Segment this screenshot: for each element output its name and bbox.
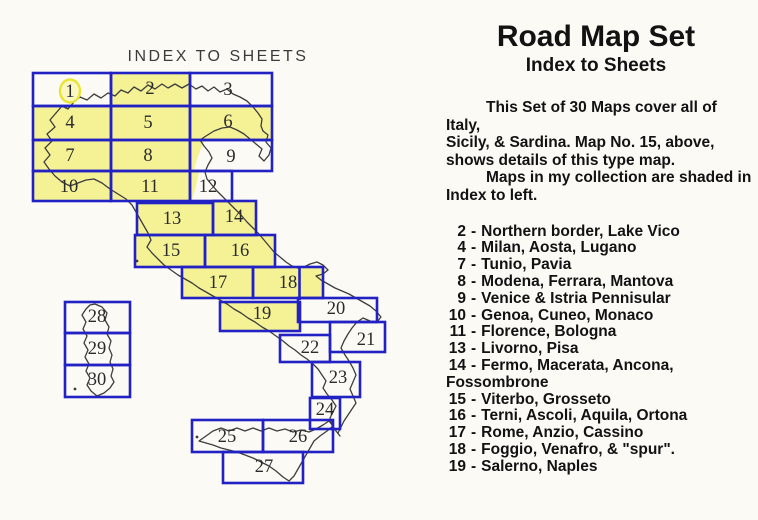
intro-paragraphs: This Set of 30 Maps cover all of Italy,S…	[440, 99, 752, 205]
intro-line: This Set of 30 Maps cover all of Italy,	[446, 99, 752, 134]
map-cell-number-10: 10	[60, 177, 79, 197]
sheet-list-item-11: 11-Florence, Bologna	[440, 324, 752, 341]
sheet-description: Modena, Ferrara, Mantova	[481, 274, 752, 291]
sheet-description: Foggio, Venafro, & "spur".	[481, 442, 752, 459]
map-cell-number-13: 13	[163, 209, 182, 229]
separator-dash: -	[466, 408, 481, 425]
map-cell-number-6: 6	[223, 112, 232, 132]
sheet-list-item-19: 19-Salerno, Naples	[440, 459, 752, 476]
separator-dash: -	[466, 459, 481, 476]
sheet-number: 4	[440, 240, 466, 257]
sheet-number: 10	[440, 308, 466, 325]
map-cell-number-19: 19	[253, 304, 272, 324]
intro-line: shows details of this type map.	[446, 152, 752, 170]
sheet-list: 2-Northern border, Lake Vico4-Milan, Aos…	[440, 224, 752, 476]
intro-line: Maps in my collection are shaded in	[446, 169, 752, 187]
map-cell-number-2: 2	[145, 79, 154, 99]
sheet-description: Fermo, Macerata, Ancona,	[481, 358, 752, 375]
separator-dash: -	[466, 358, 481, 375]
partial-shade-cell12	[190, 172, 199, 200]
sheet-list-item-13: 13-Livorno, Pisa	[440, 341, 752, 358]
sheet-description: Florence, Bologna	[481, 324, 752, 341]
map-cell-number-22: 22	[301, 338, 320, 358]
sheet-description: Viterbo, Grosseto	[481, 392, 752, 409]
separator-dash: -	[466, 224, 481, 241]
sheet-number: 13	[440, 341, 466, 358]
sheet-list-item-7: 7-Tunio, Pavia	[440, 257, 752, 274]
index-map-title: INDEX TO SHEETS	[128, 48, 309, 65]
map-cell-number-16: 16	[231, 241, 250, 261]
sheet-list-item-9: 9-Venice & Istria Pennisular	[440, 291, 752, 308]
small-island-dot	[196, 436, 199, 439]
sheet-number: 11	[440, 324, 466, 341]
sheet-description: Livorno, Pisa	[481, 341, 752, 358]
map-cell-number-24: 24	[316, 400, 335, 420]
map-cell-number-17: 17	[209, 273, 228, 293]
separator-dash: -	[466, 240, 481, 257]
sheet-description: Tunio, Pavia	[481, 257, 752, 274]
map-cell-number-8: 8	[143, 146, 152, 166]
map-cell-number-14: 14	[225, 207, 244, 227]
map-cell-number-5: 5	[143, 113, 152, 133]
sheet-number: 14	[440, 358, 466, 375]
separator-dash: -	[466, 341, 481, 358]
separator-dash: -	[466, 425, 481, 442]
sheet-number: 8	[440, 274, 466, 291]
sheet-description-continuation: Fossombrone	[440, 375, 752, 392]
map-cell-number-29: 29	[88, 339, 107, 359]
map-cell-number-27: 27	[255, 457, 274, 477]
map-cell-number-4: 4	[65, 113, 74, 133]
sheet-description: Salerno, Naples	[481, 459, 752, 476]
sheet-description: Venice & Istria Pennisular	[481, 291, 752, 308]
map-cell-number-26: 26	[289, 427, 308, 447]
separator-dash: -	[466, 442, 481, 459]
map-cell-number-11: 11	[141, 177, 159, 197]
sheet-description: Rome, Anzio, Cassino	[481, 425, 752, 442]
map-cell-number-30: 30	[88, 370, 107, 390]
partial-shade-cell9	[190, 141, 204, 170]
separator-dash: -	[466, 274, 481, 291]
sheet-number: 2	[440, 224, 466, 241]
sheet-description: Milan, Aosta, Lugano	[481, 240, 752, 257]
sheet-list-item-8: 8-Modena, Ferrara, Mantova	[440, 274, 752, 291]
separator-dash: -	[466, 392, 481, 409]
scanned-index-page: INDEX TO SHEETS 234567891011121314151617…	[0, 0, 758, 520]
map-cell-number-21: 21	[357, 330, 376, 350]
sheet-list-item-14: 14-Fermo, Macerata, Ancona,	[440, 358, 752, 375]
separator-dash: -	[466, 291, 481, 308]
intro-line: Sicily, & Sardina. Map No. 15, above,	[446, 134, 752, 152]
map-cell-number-20: 20	[327, 299, 346, 319]
map-cell-number-3: 3	[223, 80, 232, 100]
map-cell-number-12: 12	[199, 177, 218, 197]
sheet-description: Terni, Ascoli, Aquila, Ortona	[481, 408, 752, 425]
info-panel: Road Map Set Index to Sheets This Set of…	[440, 21, 752, 476]
sheet-number: 9	[440, 291, 466, 308]
sheet-number: 7	[440, 257, 466, 274]
sheet-list-item-10: 10-Genoa, Cuneo, Monaco	[440, 308, 752, 325]
map-cell-number-25: 25	[218, 427, 237, 447]
index-map: INDEX TO SHEETS 234567891011121314151617…	[0, 0, 400, 520]
map-cell-number-23: 23	[329, 368, 348, 388]
sheet-number: 19	[440, 459, 466, 476]
sheet-list-item-2: 2-Northern border, Lake Vico	[440, 224, 752, 241]
sheet-list-item-16: 16-Terni, Ascoli, Aquila, Ortona	[440, 408, 752, 425]
sheet-description: Northern border, Lake Vico	[481, 224, 752, 241]
sheet-number: 15	[440, 392, 466, 409]
sheet-number: 18	[440, 442, 466, 459]
map-cell-number-1: 1	[65, 82, 74, 102]
sheet-list-item-17: 17-Rome, Anzio, Cassino	[440, 425, 752, 442]
sheet-description: Genoa, Cuneo, Monaco	[481, 308, 752, 325]
sheet-number: 17	[440, 425, 466, 442]
sheet-list-item-18: 18-Foggio, Venafro, & "spur".	[440, 442, 752, 459]
separator-dash: -	[466, 257, 481, 274]
map-cell-number-18: 18	[279, 273, 298, 293]
separator-dash: -	[466, 308, 481, 325]
intro-line: Index to left.	[446, 187, 752, 205]
separator-dash: -	[466, 324, 481, 341]
sheet-list-item-4: 4-Milan, Aosta, Lugano	[440, 240, 752, 257]
sheet-list-item-15: 15-Viterbo, Grosseto	[440, 392, 752, 409]
map-cell-number-15: 15	[162, 241, 181, 261]
page-subtitle: Index to Sheets	[440, 55, 752, 76]
map-cell-number-7: 7	[65, 146, 74, 166]
map-cell-number-9: 9	[226, 147, 235, 167]
map-cell-number-28: 28	[88, 307, 107, 327]
small-island-dot	[74, 388, 77, 391]
sheet-number: 16	[440, 408, 466, 425]
page-title: Road Map Set	[440, 21, 752, 52]
